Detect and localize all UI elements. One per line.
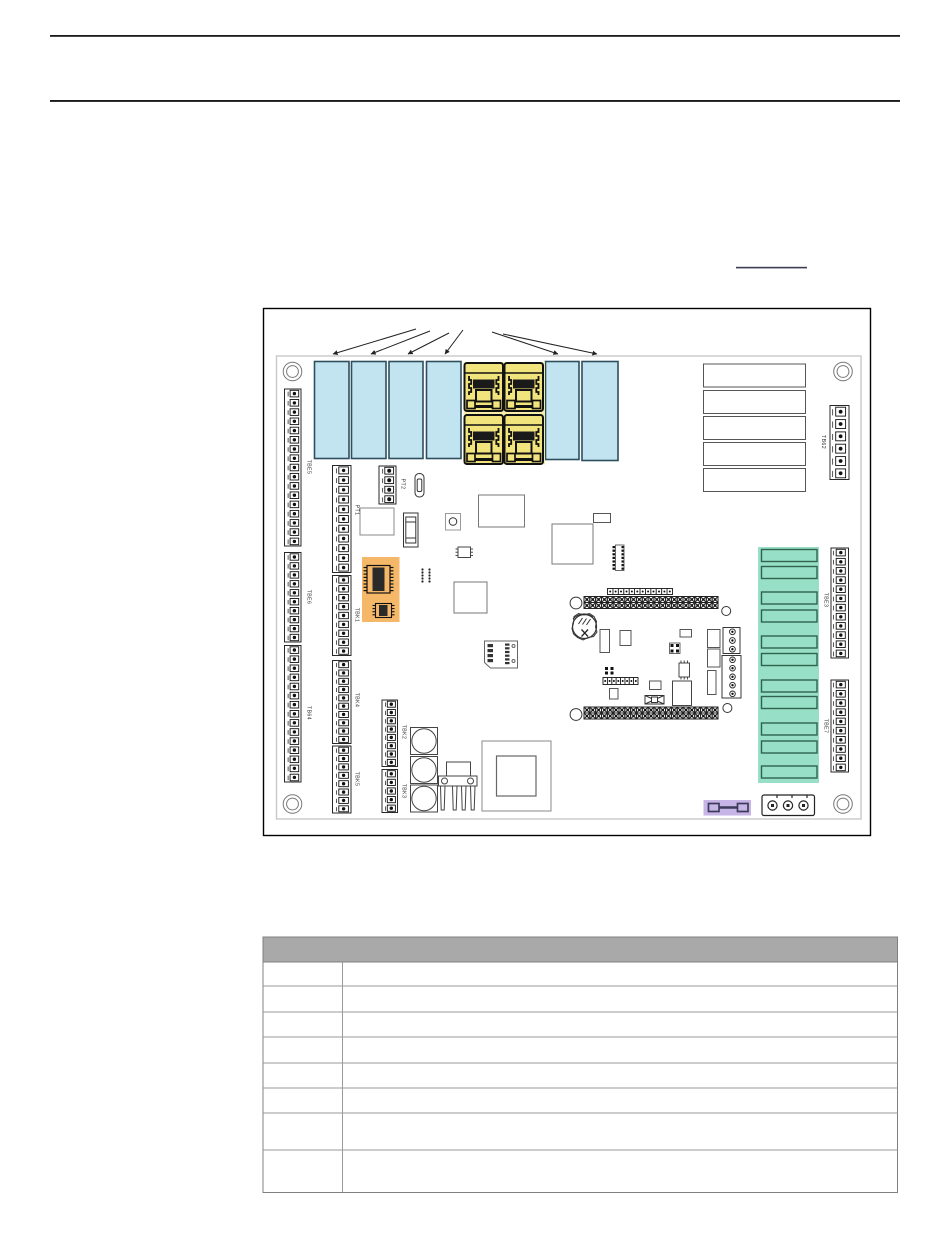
svg-text:TBK2: TBK2 xyxy=(401,725,407,740)
svg-text:TBK1: TBK1 xyxy=(354,608,360,623)
svg-text:TBE6: TBE6 xyxy=(306,590,312,605)
svg-text:PT1: PT1 xyxy=(354,505,360,516)
svg-text:TBK4: TBK4 xyxy=(354,693,360,708)
svg-text:TBK5: TBK5 xyxy=(354,772,360,787)
svg-text:TB62: TB62 xyxy=(820,435,826,449)
svg-text:TBE3: TBE3 xyxy=(823,593,829,608)
svg-text:TBK3: TBK3 xyxy=(401,784,407,799)
svg-text:TBE7: TBE7 xyxy=(823,719,829,734)
svg-text:TBE5: TBE5 xyxy=(306,460,312,475)
svg-text:PT2: PT2 xyxy=(400,479,406,490)
svg-text:TB64: TB64 xyxy=(306,706,312,720)
